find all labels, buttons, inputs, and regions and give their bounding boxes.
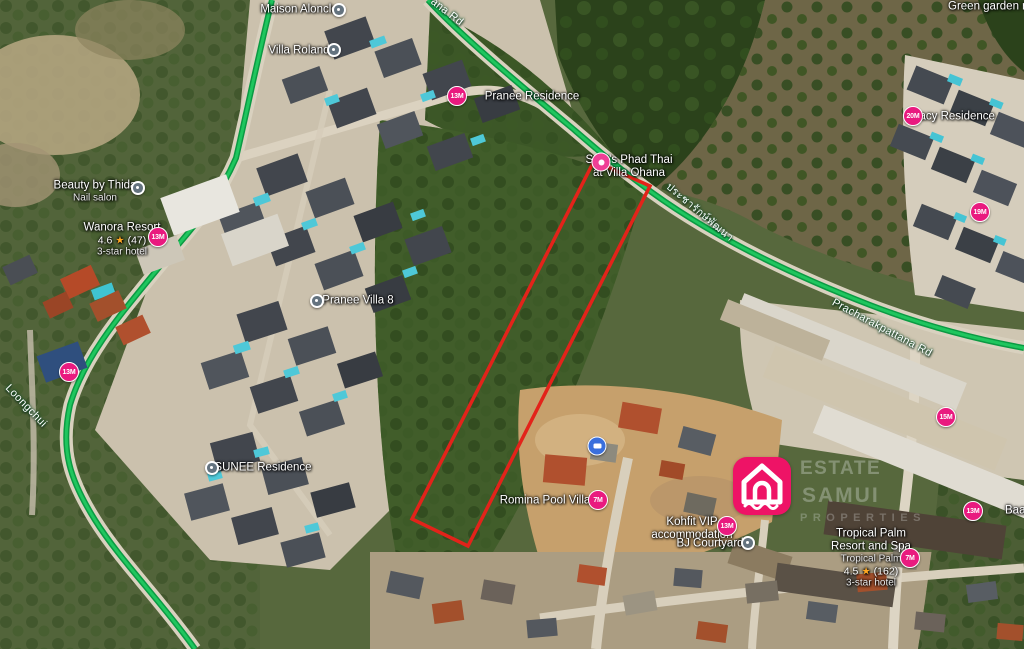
restaurant-pin-icon[interactable] bbox=[592, 153, 611, 172]
poi-icon-bj-courtyard[interactable] bbox=[741, 536, 755, 550]
star-icon: ★ bbox=[861, 565, 870, 577]
poi-icon-villa-roland[interactable] bbox=[327, 43, 341, 57]
poi-label-pranee-residence[interactable]: Pranee Residence bbox=[485, 90, 580, 103]
poi-label-maison-aloncle[interactable]: Maison Aloncle bbox=[260, 3, 337, 16]
poi-label-romina-pool-villa[interactable]: Romina Pool Villa bbox=[500, 494, 591, 507]
price-marker-loongchui-area[interactable]: 13M bbox=[59, 362, 79, 382]
poi-label-tropical-palm[interactable]: Tropical Palm Resort and Spa Tropical Pa… bbox=[831, 527, 911, 589]
poi-icon-maison-aloncle[interactable] bbox=[332, 3, 346, 17]
poi-icon-pranee-villa-8[interactable] bbox=[310, 294, 324, 308]
poi-label-villa-roland[interactable]: Villa Roland bbox=[268, 44, 329, 57]
agency-logo bbox=[733, 457, 791, 515]
price-marker-tracy[interactable]: 20M bbox=[903, 106, 923, 126]
watermark-line1: ESTATE bbox=[800, 458, 881, 480]
poi-icon-sunee-residence[interactable] bbox=[205, 461, 219, 475]
price-marker-kohfit[interactable]: 13M bbox=[717, 516, 737, 536]
poi-label-beauty-by-thida[interactable]: Beauty by Thida Nail salon bbox=[54, 180, 137, 205]
house-logo-icon bbox=[733, 457, 791, 515]
watermark-line2: SAMUI bbox=[802, 484, 880, 508]
watermark-line3: PROPERTIES bbox=[800, 512, 926, 524]
price-marker-tropical-palm[interactable]: 7M bbox=[900, 548, 920, 568]
poi-label-baan-sus[interactable]: Baan Sus bbox=[1005, 504, 1024, 517]
poi-label-bj-courtyard[interactable]: BJ Courtyard bbox=[676, 537, 743, 550]
satellite-map-canvas[interactable]: ESTATE SAMUI PROPERTIES ana Rd ประชารักษ… bbox=[0, 0, 1024, 649]
price-marker-romina[interactable]: 7M bbox=[588, 490, 608, 510]
poi-icon-beauty-by-thida[interactable] bbox=[131, 181, 145, 195]
price-marker-wanora[interactable]: 13M bbox=[148, 227, 168, 247]
poi-label-sunee-residence[interactable]: SUNEE Residence bbox=[214, 461, 311, 474]
price-marker-baan-sus[interactable]: 13M bbox=[963, 501, 983, 521]
price-marker-pranee-residence[interactable]: 13M bbox=[447, 86, 467, 106]
poi-label-green-garden[interactable]: Green garden rest Family- bbox=[990, 1, 1024, 26]
price-marker-top-right[interactable]: 19M bbox=[970, 202, 990, 222]
price-marker-mid-right[interactable]: 15M bbox=[936, 407, 956, 427]
star-icon: ★ bbox=[115, 235, 124, 247]
lodging-pin-icon[interactable] bbox=[588, 437, 607, 456]
poi-label-pranee-villa-8[interactable]: Pranee Villa 8 bbox=[322, 294, 393, 307]
